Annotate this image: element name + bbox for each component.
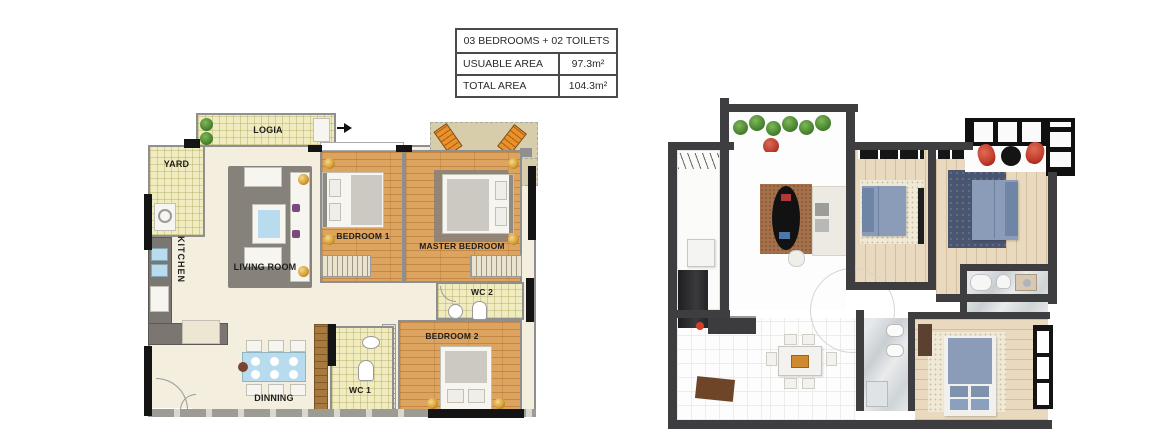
kitchen-tall-cabinet xyxy=(678,270,708,328)
bed-3d xyxy=(972,180,1018,240)
plate xyxy=(289,357,298,366)
window xyxy=(858,150,924,159)
wall xyxy=(856,310,864,411)
wall xyxy=(1048,172,1057,304)
room-yard: YARD xyxy=(148,145,205,237)
dining-chair-3d xyxy=(784,378,797,389)
pillow xyxy=(495,181,507,200)
kitchen-stove xyxy=(150,286,169,312)
wall-segment xyxy=(328,324,336,366)
dining-chair-3d xyxy=(802,378,815,389)
bedroom1-label: BEDROOM 1 xyxy=(318,232,408,242)
plant-icon xyxy=(799,120,814,135)
wall xyxy=(960,264,967,314)
pillow xyxy=(468,389,485,403)
washer-drum-icon xyxy=(158,209,172,223)
table-decor xyxy=(781,194,791,201)
drying-rack xyxy=(678,153,719,169)
shower-3d xyxy=(866,381,888,407)
bedside-lamp xyxy=(494,398,505,409)
pillow xyxy=(1005,182,1018,236)
dinning-label: DINNING xyxy=(238,393,310,403)
dining-chair xyxy=(268,340,284,352)
info-table-row: USUABLE AREA 97.3m² xyxy=(457,52,616,74)
wardrobe xyxy=(321,255,371,277)
wall xyxy=(846,282,936,290)
floor-plan-page: 03 BEDROOMS + 02 TOILETS USUABLE AREA 97… xyxy=(0,0,1170,438)
wall xyxy=(915,312,1050,319)
usable-area-value: 97.3m² xyxy=(558,54,616,74)
cushion xyxy=(292,230,300,238)
plate xyxy=(251,370,260,379)
pillow xyxy=(950,399,968,410)
wardrobe xyxy=(470,255,522,277)
plant-icon xyxy=(815,115,831,131)
dining-chair-3d xyxy=(766,352,777,366)
wall-segment xyxy=(308,145,322,152)
wall xyxy=(668,420,1052,429)
plate xyxy=(289,370,298,379)
floor-plan-3d xyxy=(660,98,1080,434)
plant-icon xyxy=(200,132,213,145)
sink-3d xyxy=(1023,279,1031,287)
bedside-lamp xyxy=(324,158,335,169)
pillow xyxy=(971,386,989,397)
living-room-label: LIVING ROOM xyxy=(205,262,325,272)
kitchen-sink xyxy=(151,264,168,277)
pillow xyxy=(447,389,464,403)
pillow xyxy=(329,203,341,221)
wall xyxy=(928,142,936,290)
toilet-3d xyxy=(996,274,1011,289)
info-table-header-text: 03 BEDROOMS + 02 TOILETS xyxy=(464,35,610,47)
plant-icon xyxy=(733,120,748,135)
wall-segment xyxy=(526,278,534,322)
pillow xyxy=(950,386,968,397)
sink xyxy=(448,304,463,319)
wall-segment xyxy=(144,194,152,250)
plant-icon xyxy=(766,121,781,136)
oval-table-3d xyxy=(772,186,800,250)
pillow xyxy=(495,207,507,226)
plate xyxy=(270,370,279,379)
info-table-header: 03 BEDROOMS + 02 TOILETS xyxy=(457,30,616,52)
wardrobe-3d xyxy=(918,188,924,244)
serving-tray xyxy=(791,355,809,368)
total-area-label: TOTAL AREA xyxy=(457,80,558,92)
table-decor xyxy=(779,232,790,239)
washing-machine-3d xyxy=(687,239,715,267)
wall xyxy=(668,310,730,318)
dining-chair xyxy=(246,340,262,352)
sink xyxy=(362,336,380,349)
dresser-3d xyxy=(918,324,932,356)
bed xyxy=(440,346,492,410)
fold-line xyxy=(878,186,879,236)
bedside-lamp xyxy=(508,158,519,169)
pillow xyxy=(329,179,341,197)
bathtub-3d xyxy=(970,274,992,291)
dining-chair-3d xyxy=(826,352,837,366)
sofa-3d xyxy=(812,186,848,256)
kitchen-sink xyxy=(151,248,168,261)
toilet-3d xyxy=(886,324,904,337)
room-wc1: WC 1 xyxy=(330,326,394,412)
headboard xyxy=(509,175,513,233)
hall-cabinet xyxy=(314,324,328,412)
ac-unit xyxy=(313,118,330,142)
kitchen-counter-3d xyxy=(708,316,756,334)
plant-icon xyxy=(200,118,213,131)
fold-line xyxy=(994,180,995,238)
dining-table xyxy=(242,352,306,382)
wc2-label: WC 2 xyxy=(452,288,512,298)
window xyxy=(936,150,968,159)
blanket xyxy=(445,351,487,383)
bedroom2-label: BEDROOM 2 xyxy=(402,332,502,342)
master-bedroom-label: MASTER BEDROOM xyxy=(398,242,526,252)
wall-segment xyxy=(428,409,524,418)
armchair-3d xyxy=(788,250,805,267)
wall-segment xyxy=(396,145,412,152)
side-table xyxy=(298,174,309,185)
kitchen-label: KITCHEN xyxy=(176,236,186,312)
usable-area-label: USUABLE AREA xyxy=(457,58,558,70)
wall xyxy=(726,104,858,112)
balcony-pergola-side xyxy=(1046,118,1075,176)
total-area-value: 104.3m² xyxy=(558,76,616,96)
logia-label: LOGIA xyxy=(228,125,308,135)
floor-plan-2d: LOGIA YARD KITCHEN LIVI xyxy=(140,108,560,423)
blanket xyxy=(447,179,489,231)
dining-chair xyxy=(290,340,306,352)
bedside-lamp xyxy=(427,398,438,409)
sofa xyxy=(244,167,282,187)
info-table: 03 BEDROOMS + 02 TOILETS USUABLE AREA 97… xyxy=(455,28,618,98)
wall xyxy=(853,142,973,150)
toilet xyxy=(472,301,487,320)
coffee-table-top xyxy=(258,210,280,238)
plate xyxy=(251,357,260,366)
duvet xyxy=(948,338,992,384)
wall xyxy=(846,106,855,286)
cushion xyxy=(292,204,300,212)
dining-chair-3d xyxy=(784,334,797,345)
dining-table-3d xyxy=(778,346,822,376)
window xyxy=(320,142,404,151)
kitchen-island xyxy=(182,320,220,344)
info-table-row: TOTAL AREA 104.3m² xyxy=(457,74,616,96)
window-tall xyxy=(1033,325,1053,409)
flower-pot xyxy=(238,362,248,372)
wc1-3d xyxy=(864,318,908,411)
room-logia: LOGIA xyxy=(196,113,336,147)
stove-burner xyxy=(696,322,704,330)
wall xyxy=(908,312,915,411)
pillow xyxy=(971,399,989,410)
wall-segment xyxy=(528,166,536,240)
wall xyxy=(936,294,1057,302)
yard-label: YARD xyxy=(150,159,203,169)
wc1-label: WC 1 xyxy=(334,386,386,396)
wall-segment xyxy=(184,139,200,148)
plant-icon xyxy=(782,116,798,132)
plant-icon xyxy=(749,115,765,131)
dining-chair-3d xyxy=(802,334,815,345)
arrow-right-icon xyxy=(344,123,357,133)
logia-3d xyxy=(729,112,846,152)
wall-segment xyxy=(520,148,532,157)
cushion xyxy=(815,203,829,216)
headboard xyxy=(323,173,327,227)
door-mat xyxy=(695,376,735,402)
pillow xyxy=(862,188,874,232)
wall-segment xyxy=(144,346,152,416)
wall xyxy=(960,264,1050,271)
bed xyxy=(322,172,384,228)
cushion xyxy=(815,219,829,232)
bidet-3d xyxy=(886,344,904,357)
wall xyxy=(720,98,729,316)
bed-3d xyxy=(944,336,996,416)
bed-3d xyxy=(862,186,906,236)
plate xyxy=(270,357,279,366)
vanity-3d xyxy=(1015,274,1037,291)
bed xyxy=(442,174,514,234)
blanket xyxy=(351,175,382,225)
wall xyxy=(668,142,677,428)
round-table xyxy=(1001,146,1021,166)
toilet xyxy=(358,360,374,381)
wc2-3d xyxy=(967,271,1048,312)
